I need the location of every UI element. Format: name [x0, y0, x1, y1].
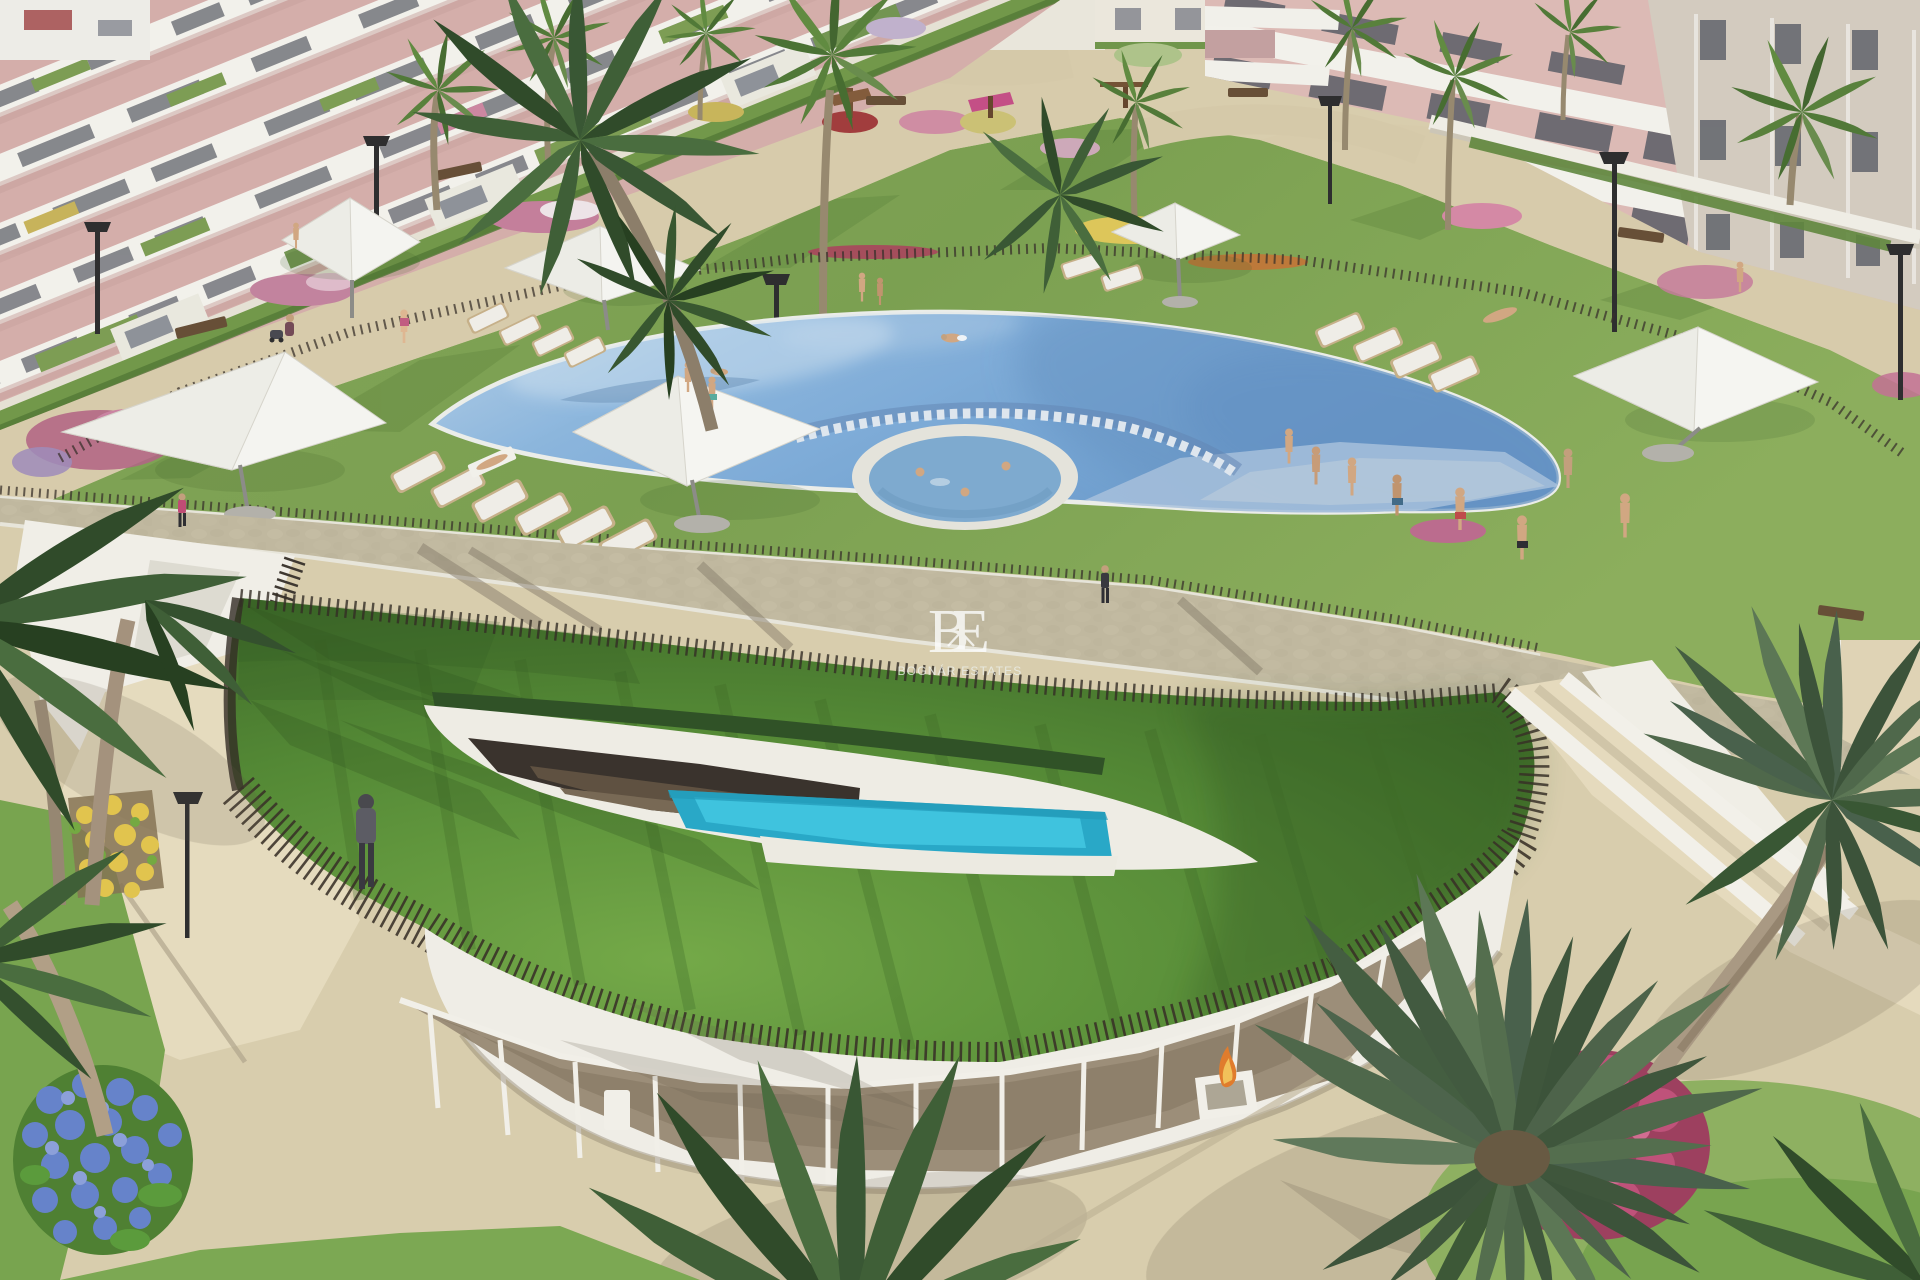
svg-text:BOGNÁR ESTATES: BOGNÁR ESTATES: [897, 663, 1022, 678]
svg-text:E: E: [952, 598, 990, 666]
